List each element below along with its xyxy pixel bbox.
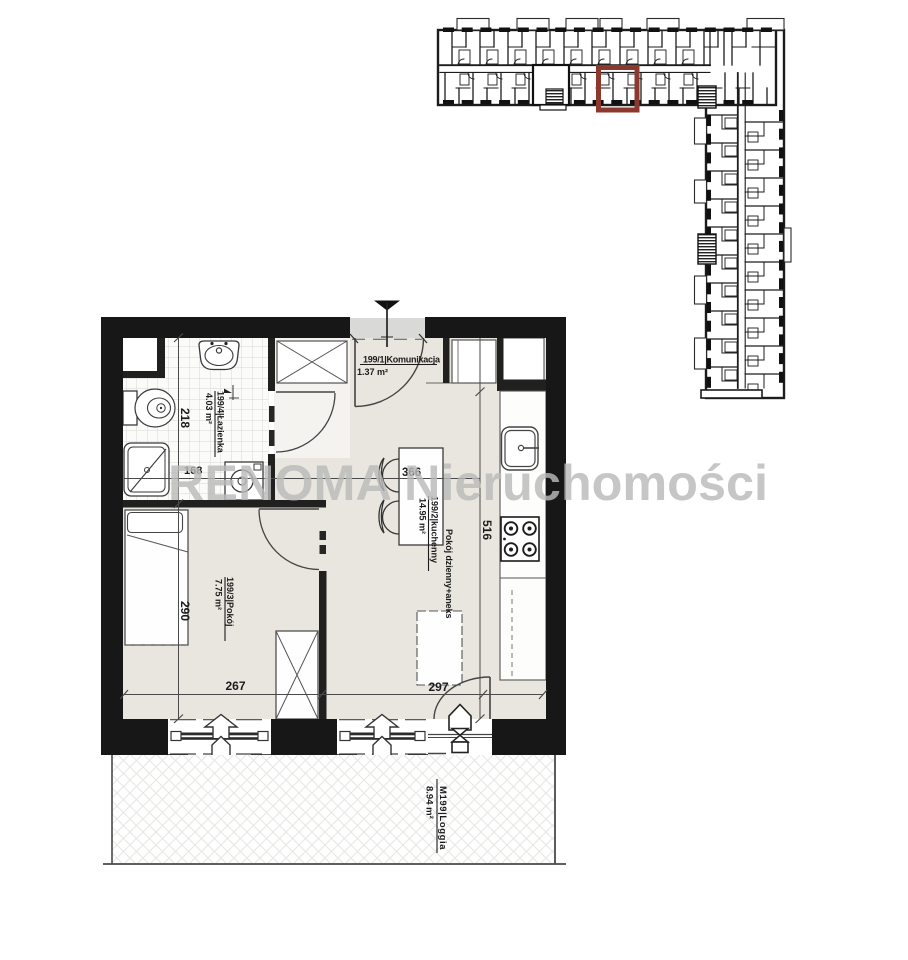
- svg-text:199/1|Komunikacja: 199/1|Komunikacja: [363, 355, 441, 365]
- svg-text:RENOMA Nieruchomości: RENOMA Nieruchomości: [168, 455, 768, 511]
- svg-text:8.94 m²: 8.94 m²: [424, 786, 435, 819]
- svg-text:290: 290: [178, 601, 192, 621]
- svg-text:267: 267: [226, 679, 246, 693]
- svg-text:199/4|Łazienka: 199/4|Łazienka: [216, 391, 226, 454]
- svg-text:199/3|Pokój: 199/3|Pokój: [225, 577, 235, 627]
- svg-text:218: 218: [178, 408, 192, 428]
- svg-text:1.37 m²: 1.37 m²: [357, 367, 388, 377]
- svg-text:516: 516: [480, 520, 494, 540]
- svg-text:M199|Loggia: M199|Loggia: [437, 786, 448, 850]
- svg-text:4.03 m²: 4.03 m²: [204, 393, 214, 424]
- svg-text:297: 297: [429, 680, 449, 694]
- svg-text:Pokój dzienny+aneks: Pokój dzienny+aneks: [444, 529, 454, 618]
- svg-text:7.75 m²: 7.75 m²: [214, 579, 224, 610]
